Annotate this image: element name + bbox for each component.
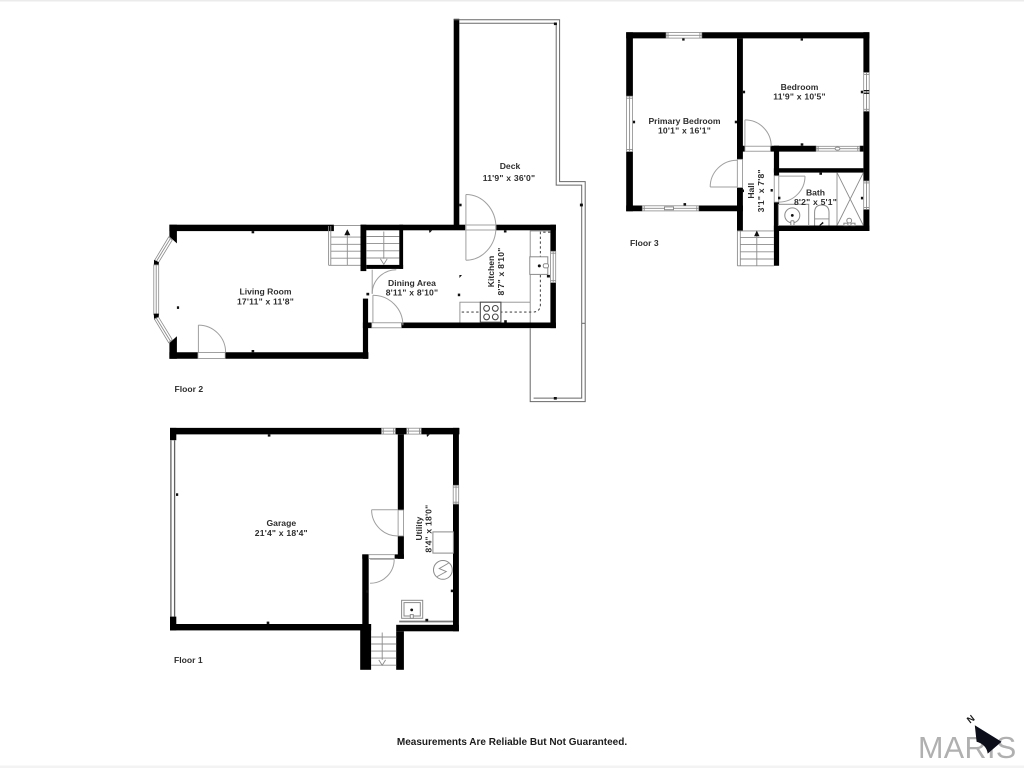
svg-text:Garage: Garage [266, 518, 296, 528]
svg-text:3'1" x 7'8": 3'1" x 7'8" [756, 169, 766, 212]
svg-text:11'9" x 36'0": 11'9" x 36'0" [483, 173, 536, 183]
svg-text:Bedroom: Bedroom [781, 82, 819, 92]
svg-text:17'11" x 11'8": 17'11" x 11'8" [237, 296, 294, 306]
svg-text:11'9" x 10'5": 11'9" x 10'5" [773, 92, 826, 102]
svg-text:Floor 1: Floor 1 [174, 655, 203, 665]
svg-text:8'2" x 5'1": 8'2" x 5'1" [794, 197, 837, 207]
svg-text:Measurements Are Reliable But: Measurements Are Reliable But Not Guaran… [397, 737, 627, 748]
svg-text:Floor 3: Floor 3 [630, 238, 659, 248]
svg-text:Hall: Hall [746, 183, 756, 199]
svg-text:8'7" x 8'10": 8'7" x 8'10" [496, 247, 506, 295]
svg-text:Bath: Bath [806, 187, 825, 197]
svg-text:Living Room: Living Room [239, 287, 291, 297]
svg-text:10'1" x 16'1": 10'1" x 16'1" [658, 126, 711, 136]
svg-text:8'4" x 18'0": 8'4" x 18'0" [423, 505, 433, 553]
svg-text:21'4" x 18'4": 21'4" x 18'4" [255, 528, 308, 538]
svg-text:Deck: Deck [500, 161, 521, 171]
svg-text:MARIS: MARIS [918, 731, 1017, 765]
svg-text:8'11" x 8'10": 8'11" x 8'10" [386, 287, 439, 297]
svg-text:Kitchen: Kitchen [486, 256, 496, 288]
svg-text:Floor 2: Floor 2 [175, 384, 204, 394]
svg-text:Dining Area: Dining Area [388, 278, 436, 288]
